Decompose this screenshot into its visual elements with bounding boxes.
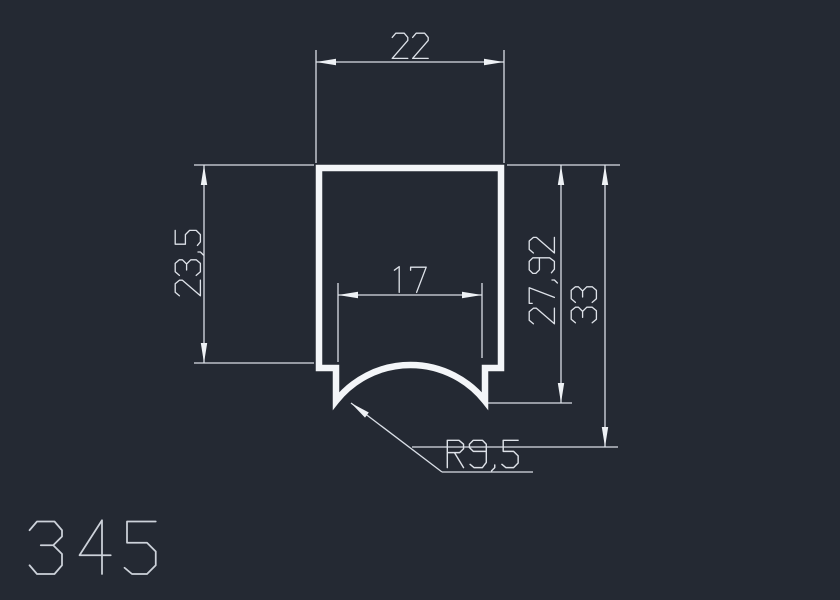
profile-path [319, 168, 501, 401]
dim-inner-height-label [529, 237, 557, 323]
arrow-up-icon [558, 165, 564, 185]
dim-top-width [316, 33, 504, 163]
arrow-up-icon [201, 165, 207, 185]
arrow-up-icon [602, 165, 608, 185]
arrow-right-icon [462, 292, 482, 298]
dim-overall-height-label [571, 287, 596, 323]
cad-drawing-canvas [0, 0, 840, 600]
radius-label [447, 440, 518, 471]
arrow-down-icon [602, 427, 608, 447]
dim-left-height-label [175, 230, 203, 295]
dim-slot-width-label [394, 267, 426, 293]
radius-leader [351, 403, 533, 472]
arrow-right-icon [484, 59, 504, 65]
dim-overall-height [412, 165, 618, 447]
profile-outline [319, 168, 501, 401]
dim-top-width-label [392, 33, 428, 58]
dim-left-height [175, 165, 314, 363]
arrow-left-icon [316, 59, 336, 65]
dim-inner-height [488, 165, 620, 403]
dim-slot-width [338, 267, 482, 362]
arrow-left-icon [338, 292, 358, 298]
arrow-down-icon [558, 383, 564, 403]
part-number [30, 520, 156, 574]
arrow-down-icon [201, 343, 207, 363]
leader-arrow-icon [351, 403, 369, 418]
